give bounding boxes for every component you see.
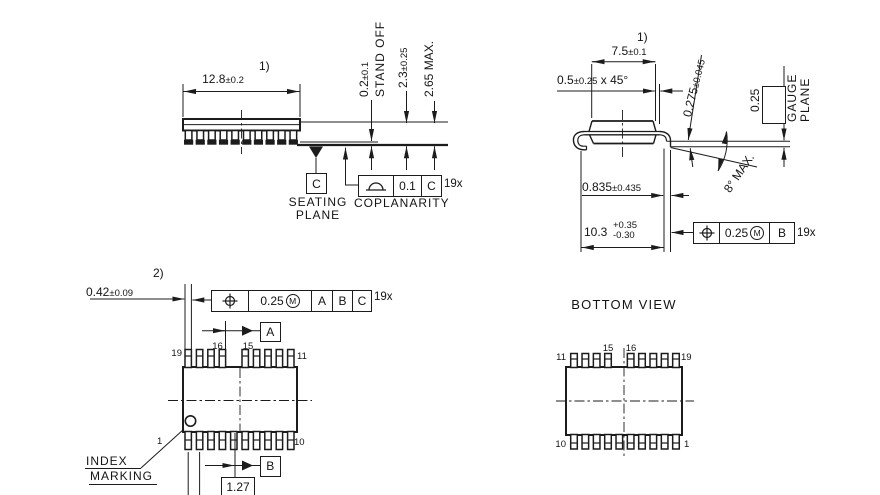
- datum-triangle-icon: [309, 147, 323, 159]
- coplanarity-label: COPLANARITY: [354, 197, 450, 210]
- datum-a-flag: A: [260, 322, 281, 343]
- overall-width-tol-minus: -0.30: [613, 231, 635, 241]
- gauge-plane-label-2: PLANE: [798, 78, 812, 122]
- coplanarity-datum: C: [421, 176, 441, 196]
- seating-plane-label-2: PLANE: [280, 209, 356, 222]
- side-view-linework: [183, 84, 448, 185]
- pin-label-19: 19: [681, 353, 692, 363]
- body-width-dim: 12.8±0.2: [183, 73, 263, 87]
- index-label-2: MARKING: [90, 470, 153, 483]
- body-width-dim: 7.5±0.1: [602, 45, 656, 59]
- overall-height-dim: 2.65 MAX.: [422, 41, 436, 97]
- position-datum-a: A: [311, 291, 332, 311]
- pin-label-16: 16: [620, 344, 642, 354]
- position-tolerance: 0.25M: [248, 291, 311, 311]
- pin-label-15: 15: [597, 344, 619, 354]
- datum-c-flag: C: [306, 173, 327, 194]
- position-fcf: 0.25M B: [693, 222, 795, 244]
- gauge-offset-dim: 0.25: [748, 89, 762, 112]
- lead-pitch-box: 1.27: [221, 477, 255, 495]
- index-label-1: INDEX: [86, 455, 128, 468]
- index-marking-circle: [185, 416, 195, 426]
- body-height-dim: 2.3±0.25: [396, 48, 410, 88]
- overall-width-tol-plus: +0.35: [613, 221, 637, 231]
- position-symbol-icon: [694, 223, 719, 243]
- gauge-plane-label-1: GAUGE: [785, 74, 799, 122]
- position-datum: B: [769, 223, 794, 243]
- overall-width-dim: 10.3: [584, 226, 607, 239]
- gauge-offset-box: 0.25: [762, 86, 786, 124]
- pin-label-1: 1: [684, 440, 689, 450]
- note-1: 1): [259, 60, 270, 73]
- pin-label-16: 16: [207, 342, 228, 352]
- mmc-modifier-icon: M: [286, 294, 300, 308]
- pin-label-11: 11: [297, 352, 307, 362]
- standoff-label: STAND OFF: [373, 21, 387, 97]
- note-2: 2): [153, 267, 164, 280]
- pin-label-1: 1: [157, 437, 162, 447]
- drawing-linework: [0, 0, 880, 495]
- coplanarity-fcf: 0.1 C: [358, 175, 442, 197]
- mmc-modifier-icon: M: [750, 226, 764, 240]
- position-tolerance: 0.25M: [719, 223, 769, 243]
- position-datum-c: C: [352, 291, 371, 311]
- bottom-view-title: BOTTOM VIEW: [567, 298, 681, 311]
- position-symbol-icon: [212, 291, 248, 311]
- pin-label-19: 19: [164, 349, 182, 359]
- coplanarity-tolerance: 0.1: [393, 176, 421, 196]
- note-1: 1): [637, 31, 648, 44]
- datum-b-triangle-icon: [242, 461, 253, 471]
- position-count: 19x: [797, 227, 816, 240]
- pin-label-10: 10: [294, 438, 305, 448]
- pin-label-15: 15: [238, 342, 259, 352]
- pin-label-10: 10: [550, 440, 566, 450]
- chamfer-dim: 0.5±0.25 x 45°: [557, 74, 628, 88]
- datum-a-triangle-icon: [242, 326, 253, 336]
- pin-label-11: 11: [552, 353, 566, 363]
- standoff-dim: 0.2±0.1: [357, 62, 371, 97]
- position-fcf: 0.25M A B C: [211, 290, 372, 312]
- lead-width-dim: 0.42±0.09: [86, 286, 133, 300]
- foot-length-dim: 0.835±0.435: [582, 181, 641, 195]
- coplanarity-count: 19x: [444, 178, 463, 191]
- coplanarity-symbol-icon: [359, 176, 393, 196]
- package-mechanical-drawing: 1) 12.8±0.2 0.2±0.1 STAND OFF 2.3±0.25 2…: [0, 0, 880, 495]
- bottom-view-linework: [556, 348, 694, 456]
- position-datum-b: B: [332, 291, 352, 311]
- datum-b-flag: B: [260, 456, 281, 477]
- position-count: 19x: [374, 291, 393, 304]
